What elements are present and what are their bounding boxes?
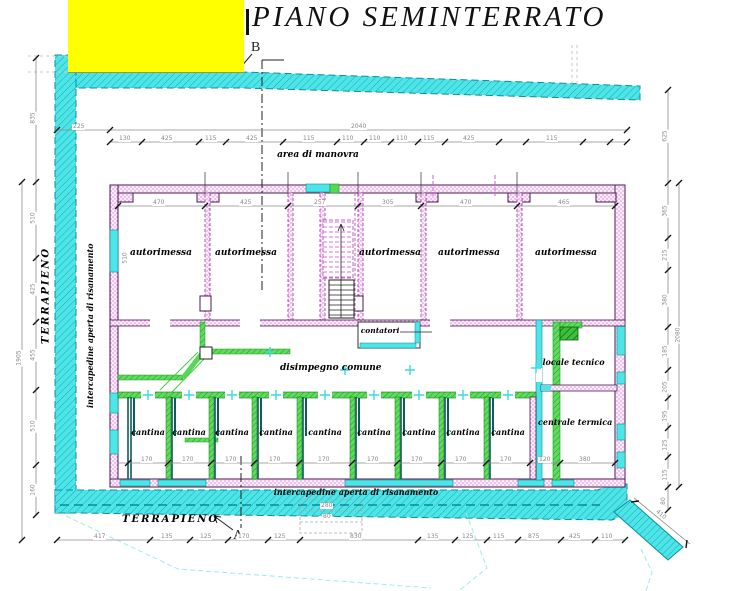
dim-can-4: 170	[317, 457, 330, 463]
room-autorimessa-4: autorimessa	[429, 248, 509, 258]
section-marker-b: B	[251, 40, 260, 56]
dim-bot-1: 135	[160, 534, 173, 540]
locale-tecnico-label: locale tecnico	[541, 357, 606, 367]
dim-top-6: 110	[368, 136, 381, 142]
dim-left-2: 425	[31, 282, 37, 295]
dim-can-6: 170	[410, 457, 423, 463]
room-cantina-8: cantina	[445, 427, 481, 437]
page-title: PIANO SEMINTERRATO	[252, 1, 606, 34]
dim-bot-5: 830	[349, 534, 362, 540]
room-cantina-2: cantina	[171, 427, 207, 437]
room-cantina-3: cantina	[214, 427, 250, 437]
dim-gar-1: 425	[239, 200, 252, 206]
dim-parking-b: 80	[322, 514, 332, 520]
floor-plan-canvas: PIANO SEMINTERRATO B A area di manovra a…	[0, 0, 729, 591]
entrance-door	[306, 184, 339, 193]
room-autorimessa-2: autorimessa	[206, 248, 286, 258]
room-cantina-7: cantina	[401, 427, 437, 437]
dim-top-3: 425	[245, 136, 258, 142]
dim-bot-2: 125	[199, 534, 212, 540]
area-manovra-label: area di manovra	[273, 150, 363, 160]
dim-top-5: 110	[341, 136, 354, 142]
dim-garage-depth: 510	[123, 251, 129, 264]
dim-bot-6: 135	[426, 534, 439, 540]
dim-left-outer: 1905	[17, 349, 23, 366]
dim-can-9: 120	[538, 457, 551, 463]
dim-top-0: 130	[118, 136, 131, 142]
dim-right-1: 365	[663, 204, 669, 217]
dim-bot-3: 170	[237, 534, 250, 540]
dim-top-10: 115	[545, 136, 558, 142]
room-cantina-9: cantina	[490, 427, 526, 437]
room-autorimessa-5: autorimessa	[526, 248, 606, 258]
dim-top-7: 110	[395, 136, 408, 142]
dim-right-outer: 2080	[676, 326, 682, 343]
dim-gar-5: 465	[557, 200, 570, 206]
yellow-redaction-box	[68, 0, 244, 73]
dim-left-3: 455	[31, 348, 37, 361]
dim-can-1: 170	[181, 457, 194, 463]
dim-left-4: 510	[31, 419, 37, 432]
dim-can-3: 170	[268, 457, 281, 463]
dim-gar-0: 470	[152, 200, 165, 206]
dim-right-3: 380	[663, 293, 669, 306]
dim-gar-3: 305	[381, 200, 394, 206]
dim-right-9: 80	[661, 496, 667, 506]
plan-drawing	[0, 0, 729, 591]
dim-can-0: 170	[140, 457, 153, 463]
dim-top-1: 425	[160, 136, 173, 142]
dim-right-0: 625	[663, 129, 669, 142]
dim-can-2: 170	[224, 457, 237, 463]
terrapieno-left-label: TERRAPIENO	[41, 246, 52, 346]
dim-right-4: 185	[663, 344, 669, 357]
room-autorimessa-1: autorimessa	[121, 248, 201, 258]
dim-overall-top: 2040	[350, 124, 367, 130]
dim-left-5: 160	[31, 483, 37, 496]
dim-bot-4: 125	[273, 534, 286, 540]
disimpegno-label: disimpegno comune	[280, 363, 375, 373]
dim-right-8: 115	[663, 468, 669, 481]
dim-bot-11: 110	[600, 534, 613, 540]
corridor-green-walls	[118, 322, 290, 442]
dim-bot-7: 125	[461, 534, 474, 540]
dim-bot-8: 115	[492, 534, 505, 540]
room-cantina-5: cantina	[307, 427, 343, 437]
dim-bot-9: 875	[527, 534, 540, 540]
dim-right-5: 205	[663, 380, 669, 393]
dim-top-2: 115	[204, 136, 217, 142]
room-cantina-1: cantina	[130, 427, 166, 437]
room-cantina-4: cantina	[258, 427, 294, 437]
dim-left-0: 835	[31, 111, 37, 124]
dim-top-4: 115	[302, 136, 315, 142]
dim-gar-4: 470	[459, 200, 472, 206]
dim-can-7: 170	[454, 457, 467, 463]
dim-bot-10: 425	[568, 534, 581, 540]
intercapedine-bottom-label: intercapedine aperta di risanamento	[270, 487, 442, 497]
dim-top-offset: 225	[72, 124, 85, 130]
dim-gar-2: 257	[313, 200, 326, 206]
dim-can-8: 170	[499, 457, 512, 463]
intercapedine-left-label: intercapedine aperta di risanamento	[85, 258, 95, 408]
terrapieno-bottom-label: TERRAPIENO	[122, 514, 219, 525]
dim-left-1: 510	[31, 211, 37, 224]
dim-parking-a: 280	[320, 503, 333, 509]
dim-bot-0: 417	[93, 534, 106, 540]
contatori-label: contatori	[360, 326, 400, 335]
dim-can-10: 380	[578, 457, 591, 463]
centrale-termica-label: centrale termica	[538, 417, 610, 427]
dim-can-5: 170	[366, 457, 379, 463]
room-autorimessa-3: autorimessa	[350, 248, 430, 258]
covered-text-fragment	[246, 9, 249, 35]
dim-right-6: 195	[663, 409, 669, 422]
dim-right-7: 125	[663, 438, 669, 451]
dim-top-8: 115	[422, 136, 435, 142]
room-cantina-6: cantina	[356, 427, 392, 437]
dim-top-9: 425	[462, 136, 475, 142]
dim-right-2: 215	[663, 248, 669, 261]
